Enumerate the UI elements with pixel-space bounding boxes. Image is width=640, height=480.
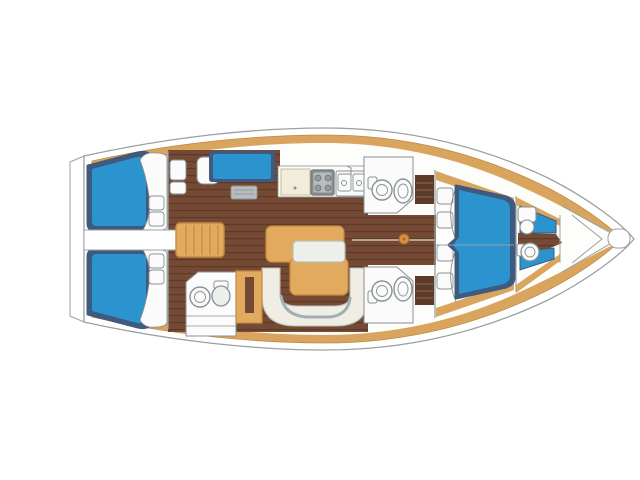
fwd-berth-cushion bbox=[453, 190, 510, 294]
mid-head-stbd-toilet bbox=[372, 281, 392, 301]
deck-plan-canvas bbox=[0, 0, 640, 480]
fwd-locker bbox=[437, 188, 453, 204]
aft-port-locker bbox=[149, 212, 164, 226]
aft-head-sink bbox=[190, 287, 210, 307]
mid-head-port-toilet bbox=[372, 180, 392, 200]
steps-base bbox=[176, 223, 224, 257]
aft-port-berth-cushion bbox=[92, 157, 146, 226]
bow-fitting bbox=[608, 229, 630, 248]
engine-compartment bbox=[84, 230, 180, 250]
instrument-panel bbox=[231, 186, 257, 199]
burner bbox=[325, 185, 331, 191]
nav-locker bbox=[170, 182, 186, 194]
mid-head-port-sink bbox=[394, 179, 412, 203]
swim-platform bbox=[70, 156, 84, 322]
burner bbox=[315, 185, 321, 191]
mid-head-port bbox=[364, 157, 413, 213]
mast bbox=[399, 234, 409, 244]
saloon-table-fwd bbox=[290, 258, 348, 295]
mid-head-stbd-sink bbox=[394, 277, 412, 301]
yacht-layout-diagram bbox=[0, 0, 640, 480]
galley bbox=[278, 166, 370, 197]
companionway-steps bbox=[176, 223, 224, 257]
aft-stbd-locker bbox=[149, 254, 164, 268]
burner bbox=[325, 175, 331, 181]
table-leaf bbox=[293, 241, 345, 262]
fwd-head-sink-bowl bbox=[520, 220, 534, 234]
aft-cabin-starboard bbox=[88, 250, 168, 329]
aft-stbd-locker bbox=[149, 270, 164, 284]
aft-head-toilet bbox=[212, 286, 230, 306]
aft-cabin-port bbox=[88, 151, 168, 230]
fwd-head-toilet bbox=[521, 243, 539, 261]
mast-center bbox=[403, 238, 406, 241]
aft-port-locker bbox=[149, 196, 164, 210]
nav-locker bbox=[170, 160, 186, 180]
engine-box bbox=[84, 230, 180, 250]
burner bbox=[315, 175, 321, 181]
chart-table-top bbox=[213, 154, 271, 179]
mid-head-starboard bbox=[364, 267, 413, 323]
sink-basin bbox=[338, 174, 351, 191]
cabinet-knob bbox=[294, 187, 297, 190]
aft-stbd-berth-cushion bbox=[92, 254, 146, 323]
aft-head-cabinet-slot bbox=[245, 277, 254, 313]
galley-cabinet bbox=[281, 169, 310, 195]
